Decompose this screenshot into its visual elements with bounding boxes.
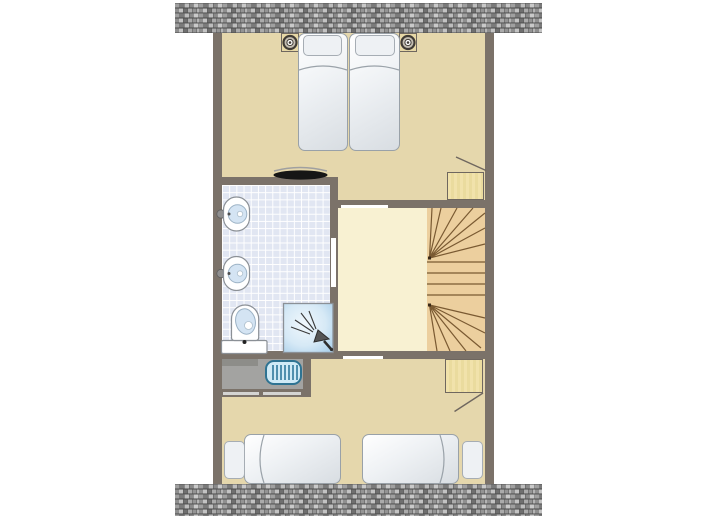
single-bed-bottom-left — [244, 434, 341, 484]
pillow-top-right — [355, 35, 395, 56]
pillow-top-left — [303, 35, 342, 56]
nightstand-left — [281, 33, 299, 52]
built-in-closet-top — [447, 172, 484, 200]
staircase-icon — [427, 208, 485, 351]
landing-bottom-door-opening — [343, 356, 383, 359]
landing-floor — [338, 208, 427, 351]
floor-plan — [0, 0, 713, 519]
nightstand-right — [399, 33, 417, 52]
landing-top-door-opening — [341, 205, 388, 208]
closet-shelf — [222, 359, 258, 366]
roof-hatch-bottom-texture — [175, 484, 542, 516]
roof-hatch-top — [175, 3, 542, 33]
closet-louver-door-right — [263, 392, 301, 395]
bathroom-floor — [222, 185, 330, 351]
pillow-bottom-left — [224, 441, 245, 479]
outer-wall-right — [485, 33, 494, 484]
bathroom-door-opening — [331, 238, 336, 287]
pillow-bottom-right — [462, 441, 483, 479]
outer-wall-left — [213, 33, 222, 484]
single-bed-bottom-right — [362, 434, 459, 484]
closet-louver-door-left — [223, 392, 259, 395]
bathroom-top-wall — [213, 177, 338, 185]
roof-hatch-top-texture — [175, 3, 542, 33]
roof-hatch-bottom — [175, 484, 542, 516]
built-in-closet-bottom — [445, 359, 483, 393]
appliance-icon — [265, 360, 302, 385]
